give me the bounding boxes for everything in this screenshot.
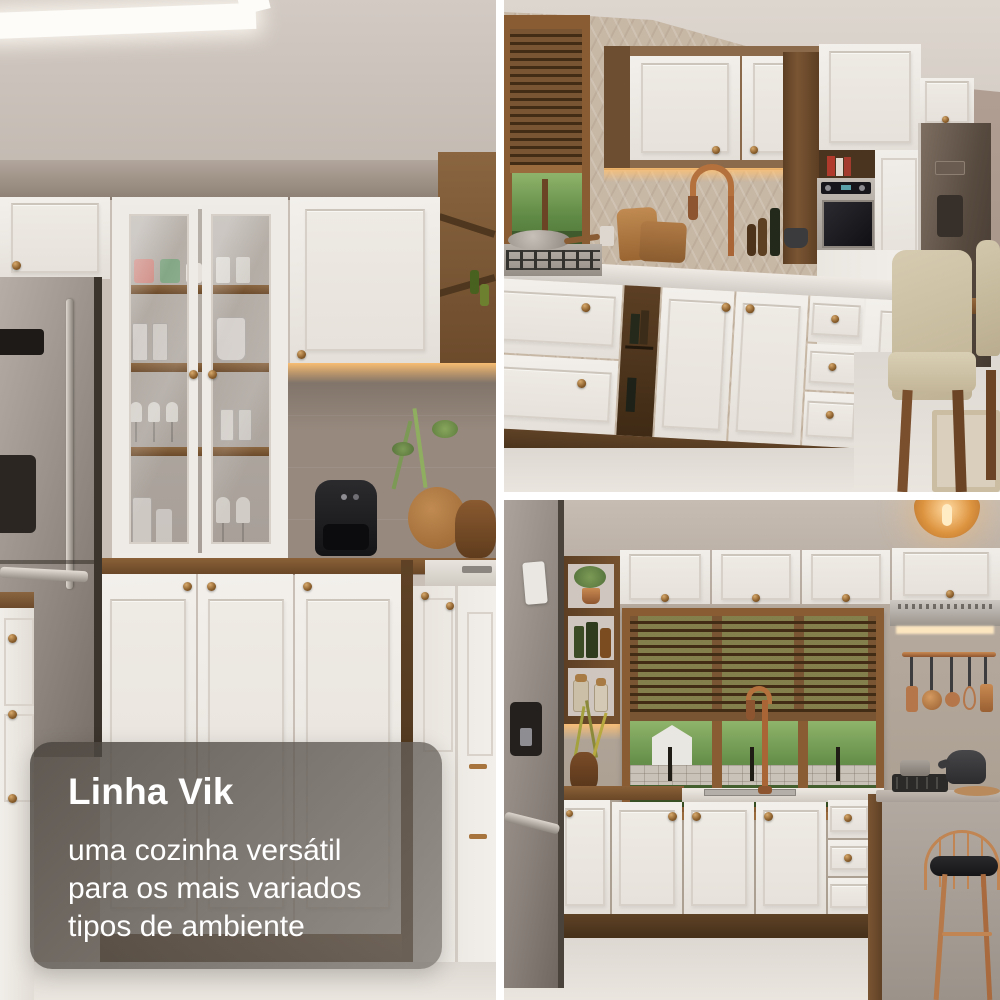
house	[652, 725, 692, 769]
spatula	[906, 686, 918, 712]
whisk	[963, 686, 976, 710]
grater	[980, 684, 993, 712]
glass-door	[120, 205, 198, 553]
tall-cabinet	[819, 44, 921, 150]
wood-vase	[455, 500, 496, 558]
pepper-mill	[758, 218, 767, 256]
dining-chair	[976, 240, 1000, 356]
range-hood	[890, 600, 1000, 626]
upper-cabinet	[290, 197, 440, 363]
window	[504, 15, 590, 260]
refrigerator	[504, 500, 564, 988]
pot	[784, 228, 808, 248]
fridge-display	[0, 329, 44, 355]
kitchen-island	[0, 592, 34, 1000]
jar	[594, 684, 608, 712]
caption-line-1: uma cozinha versátil	[68, 832, 418, 870]
sink	[462, 566, 492, 573]
cutting-board	[639, 221, 687, 263]
stool-seat	[930, 856, 998, 876]
caption-line-3: tipos de ambiente	[68, 908, 418, 946]
base-door	[560, 800, 610, 914]
caption-line-2: para os mais variados	[68, 870, 418, 908]
water-dispenser	[937, 195, 963, 237]
water-dispenser	[510, 702, 542, 756]
hood-light	[896, 626, 994, 634]
saucepan	[900, 760, 930, 776]
caption-card: Linha Vik uma cozinha versátil para os m…	[30, 742, 442, 969]
pullout-rack	[616, 285, 660, 437]
wine-shelf	[438, 152, 496, 370]
island-cooktop	[892, 774, 948, 792]
wood-counter	[560, 786, 684, 800]
open-shelf-unit	[562, 556, 620, 724]
bottle	[574, 626, 584, 658]
promo-collage: Linha Vik uma cozinha versátil para os m…	[0, 0, 1000, 1000]
oil-bottle	[770, 208, 780, 256]
fridge-badge	[522, 561, 548, 605]
glass-door	[202, 205, 280, 553]
under-cabinet-light	[288, 363, 496, 383]
built-in-oven	[817, 178, 875, 250]
plant	[574, 566, 606, 588]
utensil-rail	[902, 652, 996, 657]
plate	[954, 786, 1000, 796]
water-dispenser	[0, 455, 36, 533]
bottle	[586, 622, 598, 658]
photo-top-right-panel	[504, 0, 1000, 492]
frying-pan	[508, 230, 570, 250]
fridge-handle	[66, 299, 73, 589]
tall-cabinet-door	[875, 150, 921, 262]
freezer-handle	[0, 567, 88, 583]
photo-bottom-right-panel	[504, 500, 1000, 1000]
venetian-blinds	[510, 29, 582, 165]
skimmer	[945, 692, 960, 707]
caption-subtitle: uma cozinha versátil para os mais variad…	[68, 832, 418, 946]
kettle	[946, 750, 986, 784]
sink	[704, 789, 796, 796]
ladle	[922, 690, 942, 710]
pepper-mill	[747, 224, 756, 256]
air-fryer	[315, 480, 377, 556]
upper-cabinet	[630, 56, 740, 160]
freezer-handle	[504, 811, 560, 834]
book-niche	[819, 150, 875, 178]
plinth	[560, 914, 872, 938]
glass-cabinet	[112, 197, 288, 565]
bottle	[600, 628, 611, 658]
side-counter	[425, 560, 496, 586]
outlet	[600, 226, 614, 246]
soffit	[0, 160, 496, 200]
caption-title: Linha Vik	[68, 772, 418, 812]
